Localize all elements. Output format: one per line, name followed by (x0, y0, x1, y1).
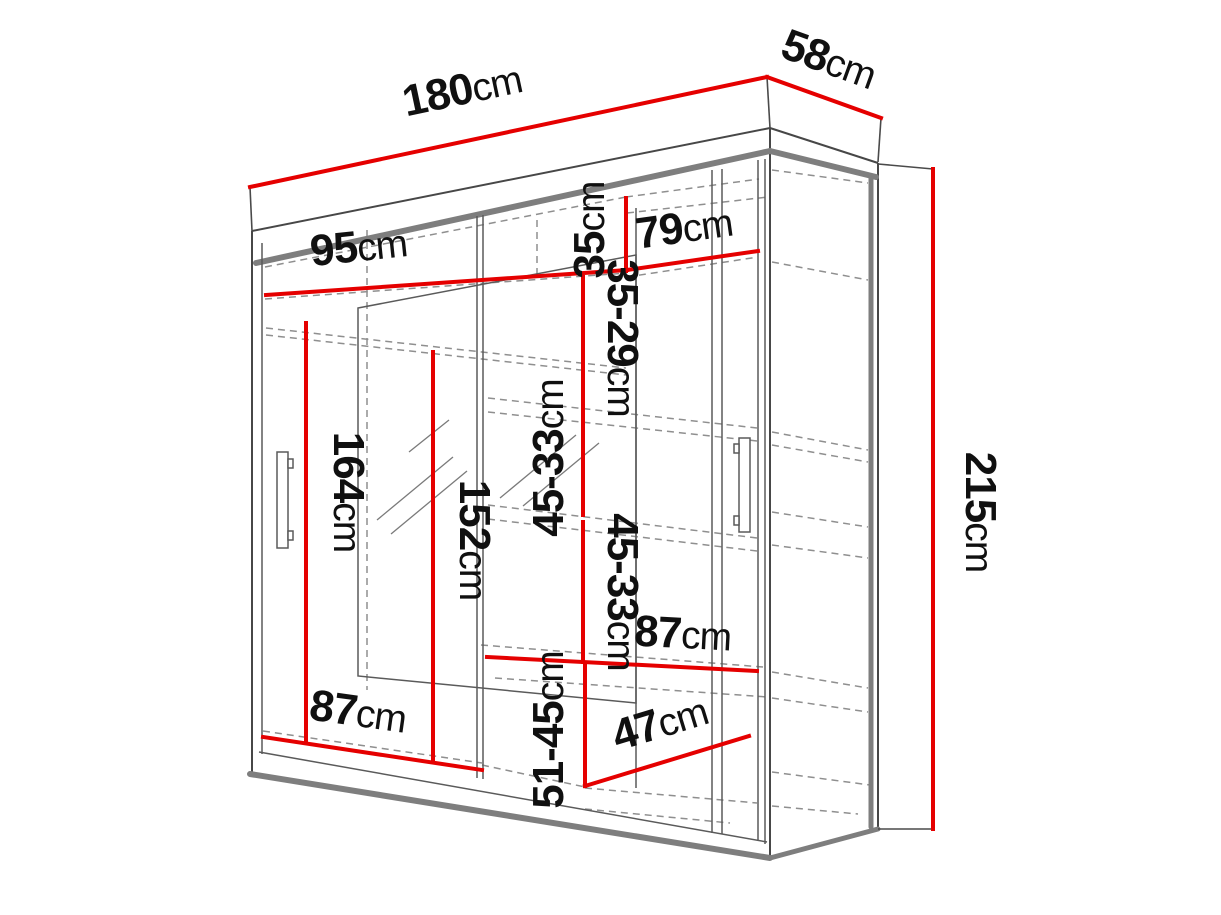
left-door-handle (277, 452, 288, 548)
mirror-shine-icon (377, 457, 453, 520)
dim-line-bottom-87 (263, 737, 482, 770)
dim-label-right-shelf-width: 87cm (633, 607, 732, 661)
dim-label-interior-right-width: 79cm (633, 197, 736, 259)
wardrobe-dimension-diagram: 180cm 58cm 215cm 95cm 79cm 35cm 35-29cm … (0, 0, 1221, 915)
dim-label-height-right: 215cm (956, 452, 1005, 572)
dim-label-interior-left-width: 95cm (308, 217, 410, 276)
dim-label-interior-depth: 47cm (606, 686, 713, 761)
dim-label-hanging-height: 164cm (324, 432, 373, 552)
dim-label-left-bottom-width: 87cm (307, 681, 410, 743)
base-plinth (250, 774, 770, 858)
dim-label-shelf-gap-2: 45-33cm (524, 379, 573, 537)
side-bottom-edge (770, 829, 878, 858)
dimension-labels: 180cm 58cm 215cm 95cm 79cm 35cm 35-29cm … (307, 20, 1005, 809)
right-door-handle (739, 438, 750, 532)
dim-label-shelf-gap-4: 51-45cm (524, 651, 573, 809)
diagram-canvas: 180cm 58cm 215cm 95cm 79cm 35cm 35-29cm … (0, 0, 1221, 915)
dim-label-shelf-gap-1: 35-29cm (598, 259, 647, 417)
dim-label-mirror-height: 152cm (450, 480, 499, 600)
base-top-edge (259, 752, 767, 842)
top-rail-side (770, 151, 876, 177)
dim-label-width-top: 180cm (398, 53, 526, 126)
